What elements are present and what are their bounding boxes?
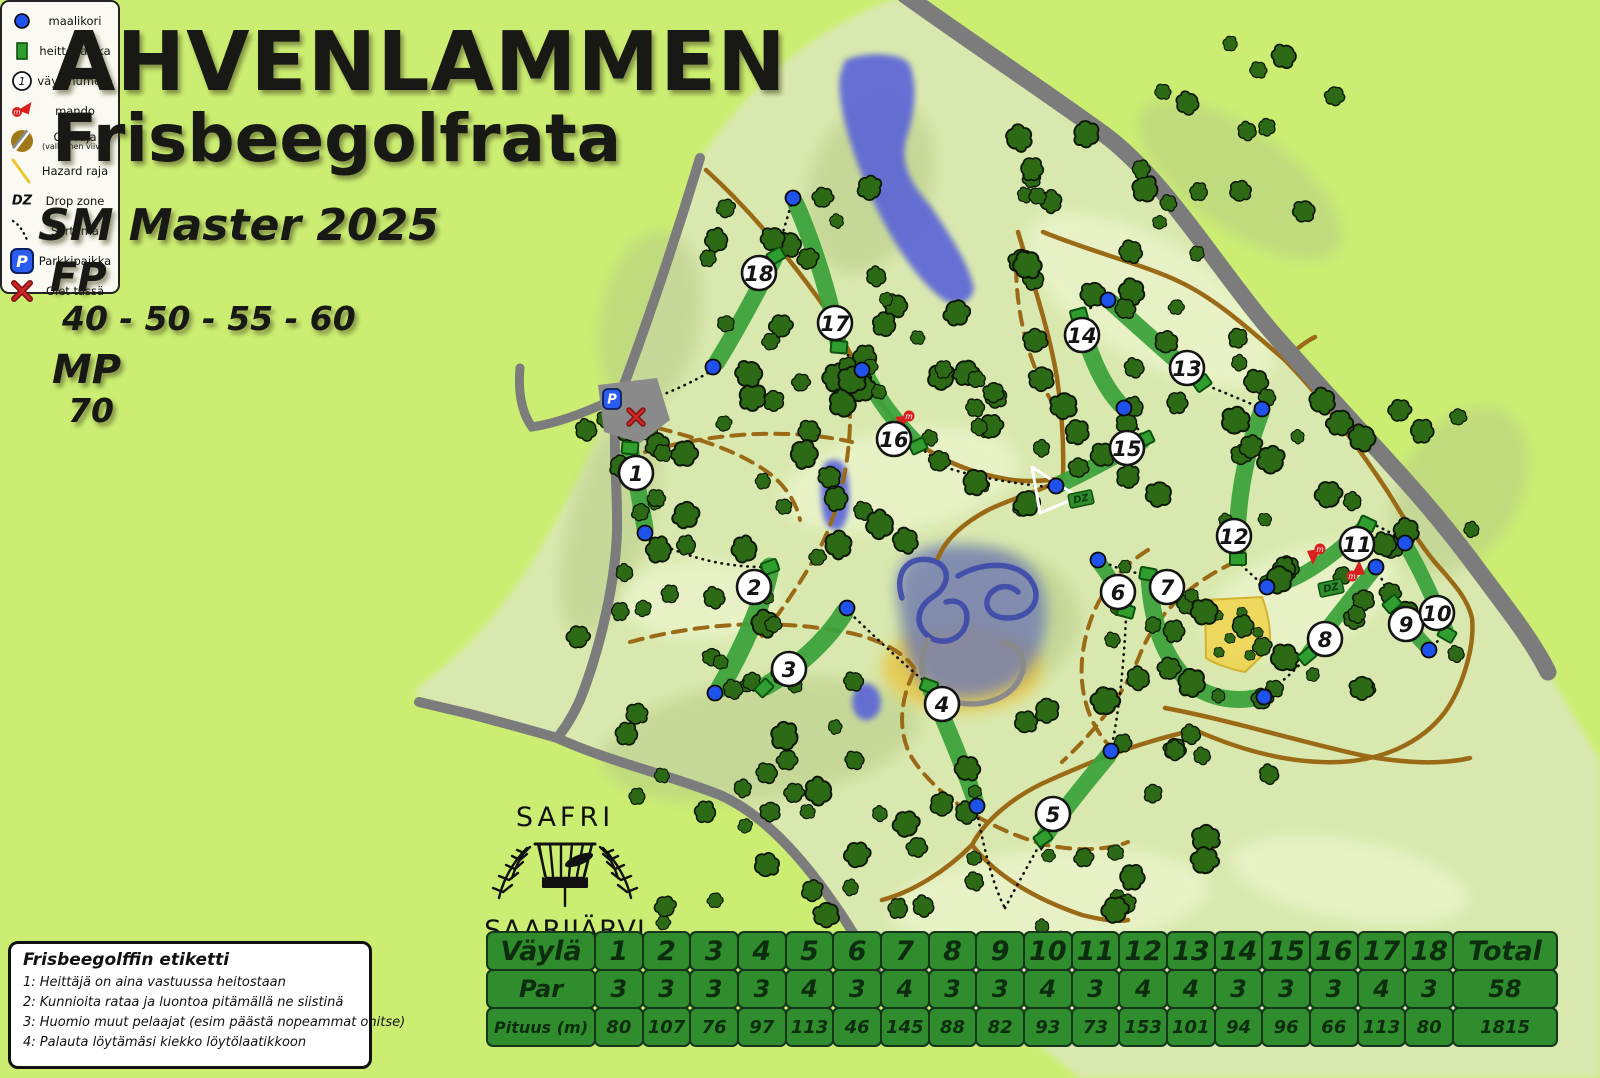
scorecard-par-total: 58 bbox=[1452, 969, 1558, 1009]
basket-icon-hole-2 bbox=[708, 686, 723, 701]
scorecard-hole-number: 11 bbox=[1071, 931, 1121, 971]
scorecard-hole-number: 4 bbox=[737, 931, 787, 971]
scorecard-table: Väylä123456789101112131415161718TotalPar… bbox=[487, 932, 1557, 1046]
svg-text:8: 8 bbox=[1318, 628, 1333, 652]
scorecard-hole-number: 16 bbox=[1309, 931, 1359, 971]
etiquette-rule: 3: Huomio muut pelaajat (esim päästä nop… bbox=[23, 1015, 357, 1030]
svg-text:9: 9 bbox=[1399, 613, 1414, 637]
svg-text:17: 17 bbox=[820, 312, 850, 336]
tree bbox=[776, 499, 792, 514]
tree bbox=[1222, 35, 1238, 52]
scorecard-length-value: 82 bbox=[975, 1007, 1025, 1047]
course-title-line1: AHVENLAMMEN bbox=[52, 22, 787, 104]
tree bbox=[1384, 395, 1415, 426]
scorecard-hole-number: 7 bbox=[880, 931, 930, 971]
scorecard-hole-number: 3 bbox=[689, 931, 739, 971]
scorecard-length-value: 101 bbox=[1166, 1007, 1216, 1047]
tree bbox=[754, 852, 780, 876]
scorecard-par-value: 4 bbox=[880, 969, 930, 1009]
scorecard-par-value: 3 bbox=[594, 969, 644, 1009]
scorecard-par-value: 3 bbox=[1071, 969, 1121, 1009]
hole-number-badge-6: 6 bbox=[1101, 575, 1135, 609]
scorecard-par-value: 4 bbox=[1118, 969, 1168, 1009]
scorecard-hole-number: 17 bbox=[1357, 931, 1407, 971]
tree bbox=[1245, 650, 1256, 660]
course-map-poster: PDZDZmmm123456789101112131415161718 AHVE… bbox=[0, 0, 1600, 1078]
svg-text:12: 12 bbox=[1219, 525, 1248, 549]
svg-text:3: 3 bbox=[782, 658, 797, 682]
scorecard-length-value: 97 bbox=[737, 1007, 787, 1047]
hole-number-badge-18: 18 bbox=[742, 256, 776, 290]
scorecard-par-value: 3 bbox=[642, 969, 692, 1009]
scorecard-length-value: 145 bbox=[880, 1007, 930, 1047]
scorecard-length-value: 88 bbox=[928, 1007, 978, 1047]
scorecard-length-value: 96 bbox=[1261, 1007, 1311, 1047]
scorecard-par-value: 3 bbox=[1261, 969, 1311, 1009]
scorecard-par-value: 4 bbox=[1023, 969, 1073, 1009]
scorecard-hole-number: 2 bbox=[642, 931, 692, 971]
scorecard-par-value: 3 bbox=[737, 969, 787, 1009]
club-logo: SAFRI SAARIJÄRVI bbox=[450, 802, 680, 946]
svg-text:1: 1 bbox=[629, 462, 644, 486]
scorecard-total-label: Total bbox=[1452, 931, 1558, 971]
scorecard-hole-number: 15 bbox=[1261, 931, 1311, 971]
hole-number-badge-14: 14 bbox=[1065, 318, 1099, 352]
course-title-line2: Frisbeegolfrata bbox=[52, 106, 621, 172]
scorecard-hole-number: 13 bbox=[1166, 931, 1216, 971]
etiquette-rule: 2: Kunnioita rataa ja luontoa pitämällä … bbox=[23, 995, 357, 1010]
hole-number-badge-12: 12 bbox=[1217, 519, 1251, 553]
scorecard-length-value: 66 bbox=[1309, 1007, 1359, 1047]
hole-number-badge-2: 2 bbox=[737, 570, 771, 604]
etiquette-title: Frisbeegolffin etiketti bbox=[23, 950, 357, 970]
svg-text:15: 15 bbox=[1112, 437, 1141, 461]
scorecard-length-value: 46 bbox=[832, 1007, 882, 1047]
tree bbox=[771, 722, 797, 750]
hole-number-badge-8: 8 bbox=[1308, 622, 1342, 656]
mp-values: 70 bbox=[68, 394, 114, 427]
scorecard-length-value: 93 bbox=[1023, 1007, 1073, 1047]
scorecard-length-value: 153 bbox=[1118, 1007, 1168, 1047]
scorecard-par-value: 4 bbox=[785, 969, 835, 1009]
scorecard-par-value: 3 bbox=[1214, 969, 1264, 1009]
tree bbox=[1179, 669, 1205, 697]
scorecard-length-value: 113 bbox=[785, 1007, 835, 1047]
club-logo-name: SAFRI bbox=[450, 802, 680, 833]
scorecard-length-value: 94 bbox=[1214, 1007, 1264, 1047]
svg-text:6: 6 bbox=[1111, 581, 1126, 605]
scorecard-length-value: 73 bbox=[1071, 1007, 1121, 1047]
fp-values: 40 - 50 - 55 - 60 bbox=[62, 302, 356, 335]
svg-text:11: 11 bbox=[1342, 533, 1371, 557]
tree bbox=[1154, 83, 1173, 101]
scorecard-par-value: 3 bbox=[975, 969, 1025, 1009]
disc-golf-basket-logo-icon bbox=[480, 833, 650, 911]
etiquette-rule: 1: Heittäjä on aina vastuussa heitostaan bbox=[23, 975, 357, 990]
tee-icon-hole-17 bbox=[831, 340, 848, 353]
scorecard-hole-number: 10 bbox=[1023, 931, 1073, 971]
scorecard-par-value: 3 bbox=[1309, 969, 1359, 1009]
parking-icon: P bbox=[603, 389, 621, 409]
basket-icon-hole-3 bbox=[840, 601, 855, 616]
svg-text:m: m bbox=[1348, 572, 1355, 581]
tree bbox=[1322, 84, 1348, 110]
scorecard-par-label: Par bbox=[486, 969, 596, 1009]
scorecard-hole-number: 1 bbox=[594, 931, 644, 971]
scorecard-hole-number: 9 bbox=[975, 931, 1025, 971]
svg-text:14: 14 bbox=[1067, 324, 1096, 348]
scorecard-par-value: 4 bbox=[1166, 969, 1216, 1009]
basket-icon-hole-10 bbox=[1398, 536, 1413, 551]
svg-text:m: m bbox=[1316, 545, 1323, 554]
fp-label: FP bbox=[50, 258, 107, 298]
tree bbox=[1225, 633, 1236, 643]
basket-icon-hole-7 bbox=[1257, 690, 1272, 705]
tree bbox=[1248, 60, 1268, 80]
basket-icon-hole-17 bbox=[786, 191, 801, 206]
tree bbox=[1268, 42, 1298, 71]
svg-text:4: 4 bbox=[934, 693, 950, 717]
tree bbox=[1214, 647, 1225, 657]
tree bbox=[705, 890, 726, 911]
scorecard-par-value: 3 bbox=[928, 969, 978, 1009]
hole-number-badge-11: 11 bbox=[1340, 527, 1374, 561]
hole-number-badge-4: 4 bbox=[925, 687, 959, 721]
hole-number-badge-13: 13 bbox=[1170, 351, 1204, 385]
hole-number-badge-7: 7 bbox=[1150, 570, 1184, 604]
scorecard-length-label: Pituus (m) bbox=[486, 1007, 596, 1047]
hole-number-badge-9: 9 bbox=[1389, 607, 1423, 641]
basket-icon-hole-14 bbox=[1117, 401, 1132, 416]
basket-icon-hole-4 bbox=[970, 799, 985, 814]
scorecard-par-value: 3 bbox=[1404, 969, 1454, 1009]
scorecard-par-value: 3 bbox=[689, 969, 739, 1009]
scorecard-length-value: 80 bbox=[1404, 1007, 1454, 1047]
svg-text:m: m bbox=[905, 412, 912, 421]
scorecard-length-value: 80 bbox=[594, 1007, 644, 1047]
hole-number-badge-16: 16 bbox=[877, 422, 911, 456]
tree bbox=[1066, 420, 1089, 444]
svg-text:10: 10 bbox=[1422, 602, 1451, 626]
scorecard-par-value: 4 bbox=[1357, 969, 1407, 1009]
scorecard-header-label: Väylä bbox=[486, 931, 596, 971]
basket-icon-hole-18 bbox=[706, 360, 721, 375]
svg-text:18: 18 bbox=[744, 262, 773, 286]
event-title: SM Master 2025 bbox=[38, 204, 439, 248]
scorecard-length-value: 113 bbox=[1357, 1007, 1407, 1047]
etiquette-rule: 4: Palauta löytämäsi kiekko löytölaatikk… bbox=[23, 1035, 357, 1050]
tee-icon-hole-12 bbox=[1230, 553, 1246, 565]
tee-icon-hole-1 bbox=[622, 441, 639, 454]
hole-number-badge-10: 10 bbox=[1420, 596, 1454, 630]
etiquette-box: Frisbeegolffin etiketti 1: Heittäjä on a… bbox=[8, 941, 372, 1069]
scorecard-hole-number: 18 bbox=[1404, 931, 1454, 971]
scorecard-hole-number: 12 bbox=[1118, 931, 1168, 971]
basket-icon-hole-9 bbox=[1422, 643, 1437, 658]
scorecard-length-value: 76 bbox=[689, 1007, 739, 1047]
basket-icon-hole-1 bbox=[638, 526, 653, 541]
basket-icon-hole-5 bbox=[1104, 744, 1119, 759]
scorecard-hole-number: 5 bbox=[785, 931, 835, 971]
basket-icon-hole-11 bbox=[1260, 580, 1275, 595]
basket-icon-hole-6 bbox=[1091, 553, 1106, 568]
tree bbox=[1258, 118, 1276, 137]
scorecard-hole-number: 8 bbox=[928, 931, 978, 971]
svg-text:2: 2 bbox=[747, 576, 762, 600]
mp-label: MP bbox=[52, 350, 121, 390]
hole-number-badge-15: 15 bbox=[1110, 431, 1144, 465]
tree bbox=[1253, 627, 1264, 637]
etiquette-rules: 1: Heittäjä on aina vastuussa heitostaan… bbox=[23, 975, 357, 1050]
basket-icon-hole-16 bbox=[855, 363, 870, 378]
hole-number-badge-1: 1 bbox=[619, 456, 653, 490]
scorecard-length-value: 107 bbox=[642, 1007, 692, 1047]
svg-text:16: 16 bbox=[879, 428, 908, 452]
scorecard-par-value: 3 bbox=[832, 969, 882, 1009]
basket-icon-hole-13 bbox=[1101, 293, 1116, 308]
svg-text:13: 13 bbox=[1172, 357, 1201, 381]
scorecard-length-total: 1815 bbox=[1452, 1007, 1558, 1047]
svg-text:P: P bbox=[607, 393, 617, 408]
svg-text:7: 7 bbox=[1160, 576, 1175, 600]
basket-icon-hole-15 bbox=[1049, 479, 1064, 494]
svg-text:5: 5 bbox=[1046, 803, 1061, 827]
scorecard-hole-number: 6 bbox=[832, 931, 882, 971]
dirt-track-area bbox=[882, 544, 1046, 712]
basket-icon-hole-12 bbox=[1255, 402, 1270, 417]
hole-number-badge-17: 17 bbox=[818, 306, 852, 340]
scorecard-hole-number: 14 bbox=[1214, 931, 1264, 971]
hole-number-badge-5: 5 bbox=[1036, 797, 1070, 831]
hole-number-badge-3: 3 bbox=[772, 652, 806, 686]
basket-icon-hole-8 bbox=[1369, 560, 1384, 575]
